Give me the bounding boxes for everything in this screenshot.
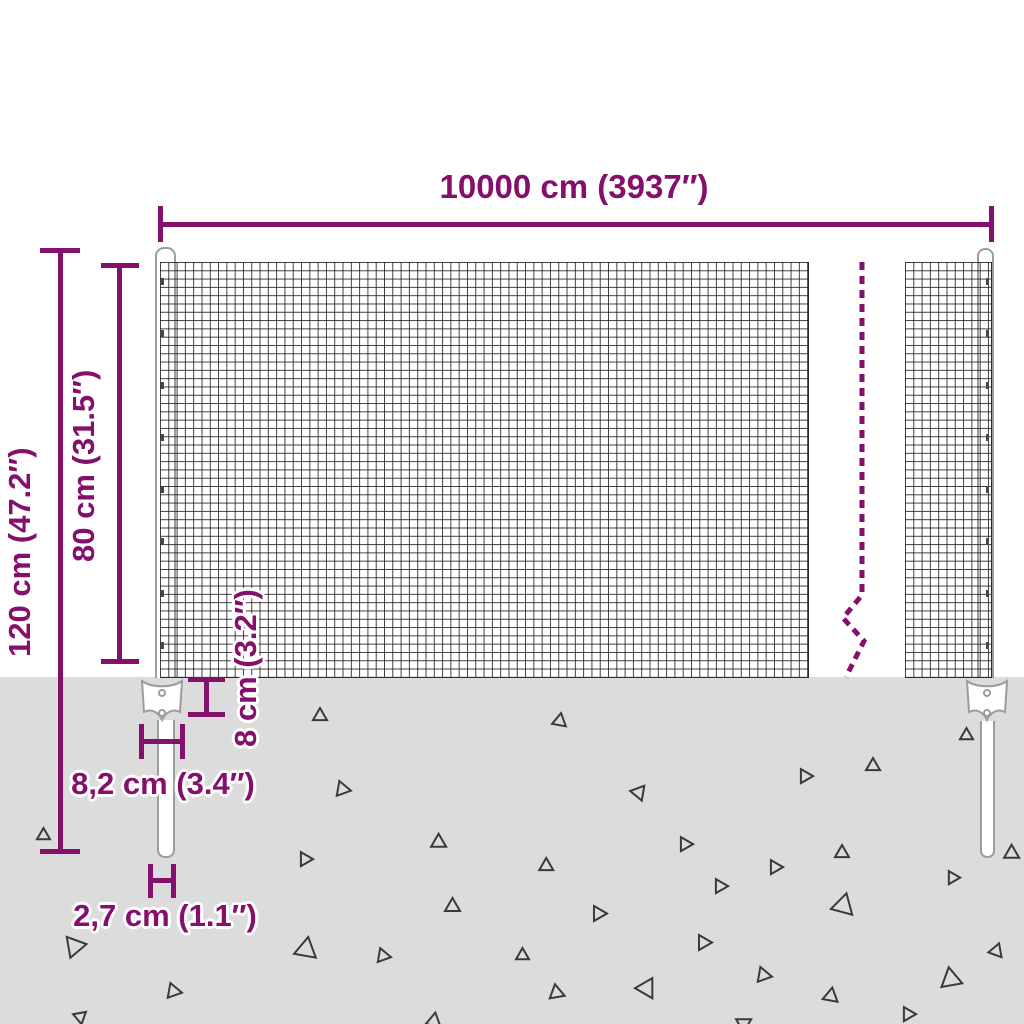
ground-area: [0, 677, 1024, 1024]
mesh-panel-right: [905, 262, 992, 678]
mesh-clips-left: [161, 278, 164, 670]
mesh-clips-right: [986, 278, 989, 670]
anchor-depth-dimension-line: [204, 677, 209, 717]
post-diameter-tick-left: [148, 864, 153, 898]
plate-width-tick-right: [180, 724, 185, 759]
mesh-height-tick-top: [101, 263, 139, 268]
post-diameter-label: 2,7 cm (1.1″): [62, 898, 268, 934]
mesh-height-label: 80 cm (31.5″): [66, 372, 110, 562]
total-height-tick-top: [40, 248, 80, 253]
anchor-depth-tick-bottom: [188, 712, 225, 717]
plate-width-label: 8,2 cm (3.4″): [60, 766, 266, 802]
width-dimension-tick-right: [989, 206, 994, 242]
mesh-height-tick-bottom: [101, 659, 139, 664]
width-dimension-label: 10000 cm (3937″): [374, 168, 774, 206]
fence-dimension-diagram: 10000 cm (3937″) 120 cm (47.2″) 80 cm (3…: [0, 0, 1024, 1024]
right-post-underground: [980, 721, 995, 858]
post-diameter-tick-right: [171, 864, 176, 898]
plate-width-dimension-line: [141, 739, 184, 744]
anchor-depth-label: 8 cm (3.2″): [228, 577, 266, 759]
plate-width-tick-left: [139, 724, 144, 759]
total-height-dimension-line: [58, 250, 63, 854]
width-dimension-tick-left: [158, 206, 163, 242]
anchor-depth-tick-top: [188, 677, 225, 682]
mesh-height-dimension-line: [117, 265, 122, 664]
total-height-tick-bottom: [40, 849, 80, 854]
total-height-label: 120 cm (47.2″): [2, 432, 46, 672]
width-dimension-line: [158, 222, 994, 227]
